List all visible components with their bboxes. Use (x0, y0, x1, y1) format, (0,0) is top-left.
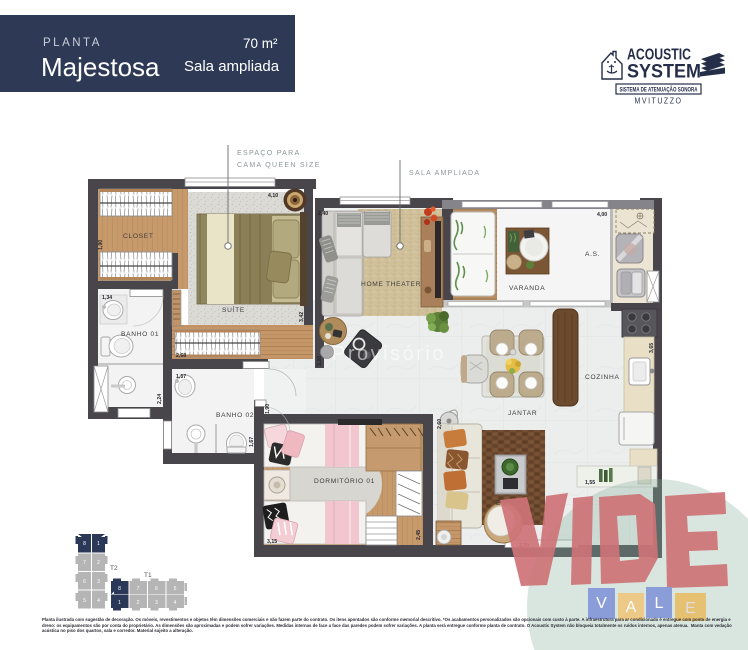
svg-text:2: 2 (137, 600, 140, 606)
svg-text:2,24: 2,24 (157, 394, 163, 404)
svg-text:1,55: 1,55 (585, 480, 595, 486)
svg-text:BANHO 02: BANHO 02 (216, 412, 254, 419)
svg-text:2,40: 2,40 (318, 211, 328, 217)
svg-text:1: 1 (118, 600, 121, 606)
svg-text:2,60: 2,60 (437, 419, 443, 429)
svg-text:5: 5 (174, 586, 177, 592)
svg-text:4: 4 (97, 598, 100, 604)
svg-text:4,10: 4,10 (268, 193, 278, 199)
svg-text:7: 7 (137, 586, 140, 592)
svg-text:2,45: 2,45 (416, 530, 422, 540)
svg-text:DORMITÓRIO 01: DORMITÓRIO 01 (314, 476, 375, 485)
svg-text:5: 5 (83, 598, 86, 604)
svg-text:BANHO 01: BANHO 01 (121, 331, 159, 338)
svg-text:1,34: 1,34 (102, 295, 112, 301)
svg-text:1,67: 1,67 (249, 437, 255, 447)
svg-text:VARANDA: VARANDA (509, 285, 545, 292)
svg-text:HOME THEATER: HOME THEATER (361, 281, 421, 288)
svg-text:Provisório: Provisório (332, 343, 446, 365)
svg-text:8: 8 (83, 541, 86, 547)
svg-text:6: 6 (83, 579, 86, 585)
svg-text:4: 4 (174, 600, 177, 606)
svg-text:3,65: 3,65 (649, 343, 655, 353)
svg-text:1,57: 1,57 (176, 374, 186, 380)
svg-text:3,42: 3,42 (299, 312, 305, 322)
svg-text:3,20: 3,20 (317, 356, 323, 366)
svg-text:8: 8 (118, 586, 121, 592)
svg-text:3: 3 (155, 600, 158, 606)
svg-text:7: 7 (83, 560, 86, 566)
svg-text:SUÍTE: SUÍTE (222, 305, 245, 314)
svg-text:JANTAR: JANTAR (508, 410, 537, 417)
svg-text:6: 6 (155, 586, 158, 592)
svg-text:3: 3 (97, 579, 100, 585)
svg-text:1: 1 (97, 541, 100, 547)
svg-text:COZINHA: COZINHA (585, 374, 620, 381)
svg-text:1,90: 1,90 (98, 240, 104, 250)
svg-text:A.S.: A.S. (585, 251, 600, 258)
svg-text:2,68: 2,68 (176, 353, 186, 359)
svg-text:T2: T2 (110, 565, 118, 572)
svg-text:3,15: 3,15 (267, 539, 277, 545)
svg-text:2: 2 (97, 560, 100, 566)
svg-text:T1: T1 (144, 572, 152, 579)
svg-text:4,00: 4,00 (597, 212, 607, 218)
svg-text:1,90: 1,90 (265, 404, 271, 414)
svg-text:CLOSET: CLOSET (123, 233, 154, 240)
